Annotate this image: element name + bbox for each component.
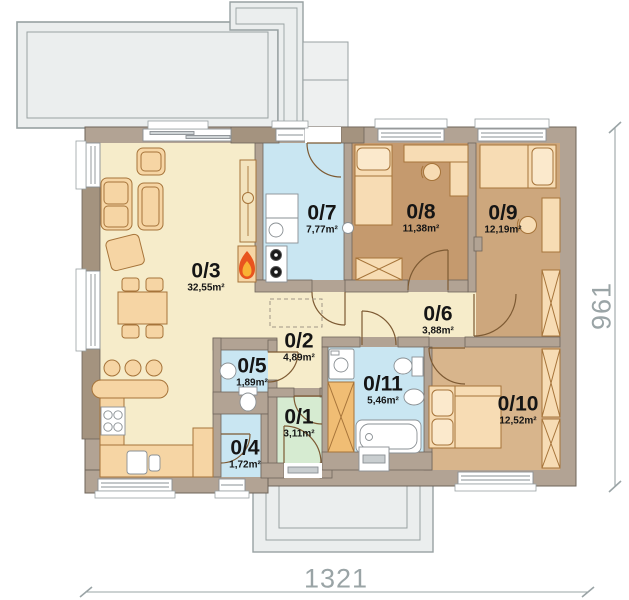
exterior-door-opening [305, 127, 341, 143]
desk [542, 198, 560, 252]
window [458, 472, 533, 484]
entry-wardrobe [328, 382, 354, 452]
terrace [17, 22, 278, 128]
chair [520, 217, 537, 234]
bar-stool [125, 360, 141, 376]
wc-sink [220, 363, 236, 379]
bar-stool [146, 360, 162, 376]
dining-chair [122, 278, 139, 291]
hob [101, 407, 125, 435]
kitchen-sink [127, 451, 147, 474]
desk [404, 145, 468, 162]
floor-plan-drawing [0, 0, 629, 600]
window [378, 129, 444, 141]
dimension-height-label: 961 [587, 282, 618, 330]
bar-stool [104, 360, 120, 376]
washbasin [404, 389, 424, 405]
window [98, 479, 172, 491]
side-canopy [303, 42, 348, 128]
dimension-width-label: 1321 [304, 564, 368, 595]
washing-machine [329, 349, 354, 379]
pillow [357, 148, 390, 170]
window [478, 129, 546, 141]
kitchen-counter [193, 428, 213, 477]
pillow [432, 419, 453, 445]
counter [266, 194, 298, 243]
floor-plan: 0/332,55m² 0/77,77m² 0/811,38m² 0/912,19… [0, 0, 629, 600]
wall-knob [343, 223, 354, 234]
flue-symbol [243, 193, 254, 204]
toilet-bowl [394, 358, 412, 374]
wc-toilet-bowl [240, 393, 256, 411]
toilet-tank [412, 357, 423, 376]
kitchen-sink [149, 455, 160, 471]
chair [424, 164, 441, 181]
dining-chair [146, 278, 163, 291]
sink [269, 223, 283, 237]
terrace-sliding-door [143, 129, 231, 141]
window [86, 143, 100, 187]
dining-table [118, 292, 167, 324]
dining-chair [122, 325, 139, 338]
desk [450, 162, 468, 196]
pillow [432, 390, 453, 416]
window [86, 271, 100, 349]
pillow [532, 148, 553, 185]
dining-chair [146, 325, 163, 338]
bar-counter [92, 380, 168, 398]
